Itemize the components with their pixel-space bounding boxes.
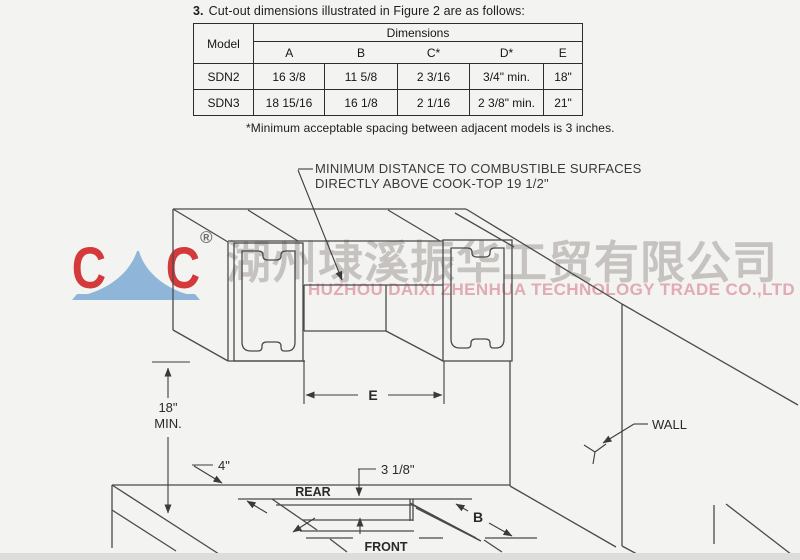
cell-model: SDN2 — [194, 64, 254, 90]
left-cutout-opening — [242, 251, 295, 351]
cell-a: 18 15/16 — [254, 90, 325, 116]
dimension-label-b: B — [473, 509, 483, 525]
label-rear: REAR — [295, 485, 330, 499]
label-front: FRONT — [364, 540, 407, 554]
wall-outline — [622, 304, 798, 546]
right-cutout-opening — [451, 248, 504, 348]
cell-e: 18" — [544, 64, 583, 90]
dimension-label-min: MIN. — [154, 416, 181, 431]
dimension-label-e: E — [368, 387, 377, 403]
counter-outline — [112, 485, 796, 560]
table-row-sdn3: SDN3 18 15/16 16 1/8 2 1/16 2 3/8" min. … — [194, 90, 583, 116]
cell-e: 21" — [544, 90, 583, 116]
right-cutout-frame — [443, 240, 512, 361]
dimension-lines — [152, 169, 648, 536]
note-number: 3. — [193, 4, 204, 18]
col-header-e: E — [544, 42, 583, 64]
page-bottom-edge — [0, 553, 800, 560]
col-header-d: D* — [470, 42, 544, 64]
label-wall: WALL — [652, 417, 687, 432]
cell-d: 3/4" min. — [470, 64, 544, 90]
note-title: 3.Cut-out dimensions illustrated in Figu… — [193, 4, 525, 18]
hood-outline — [173, 209, 622, 486]
combustible-callout-line1: MINIMUM DISTANCE TO COMBUSTIBLE SURFACES — [315, 161, 642, 176]
dimension-label-3-1-8in: 3 1/8" — [381, 462, 415, 477]
note-text: Cut-out dimensions illustrated in Figure… — [209, 4, 525, 18]
cell-d: 2 3/8" min. — [470, 90, 544, 116]
group-header-dimensions: Dimensions — [254, 24, 583, 42]
cell-b: 11 5/8 — [325, 64, 398, 90]
dimension-label-4in: 4" — [218, 458, 230, 473]
cell-b: 16 1/8 — [325, 90, 398, 116]
cell-c: 2 3/16 — [398, 64, 470, 90]
col-header-model: Model — [194, 24, 254, 64]
cutout-dimensions-table: Model Dimensions A B C* D* E SDN2 16 3/8… — [193, 23, 583, 116]
cell-a: 16 3/8 — [254, 64, 325, 90]
table-row-sdn2: SDN2 16 3/8 11 5/8 2 3/16 3/4" min. 18" — [194, 64, 583, 90]
cell-model: SDN3 — [194, 90, 254, 116]
cell-c: 2 1/16 — [398, 90, 470, 116]
document-page: C C ® 湖州埭溪振华工贸有限公司 HUZHOU DAIXI ZHENHUA … — [0, 0, 800, 560]
combustible-callout-line2: DIRECTLY ABOVE COOK-TOP 19 1/2" — [315, 176, 549, 191]
col-header-b: B — [325, 42, 398, 64]
table-footnote: *Minimum acceptable spacing between adja… — [246, 121, 615, 135]
dimension-label-18in: 18" — [158, 400, 177, 415]
col-header-a: A — [254, 42, 325, 64]
col-header-c: C* — [398, 42, 470, 64]
left-cutout-frame — [234, 243, 303, 361]
